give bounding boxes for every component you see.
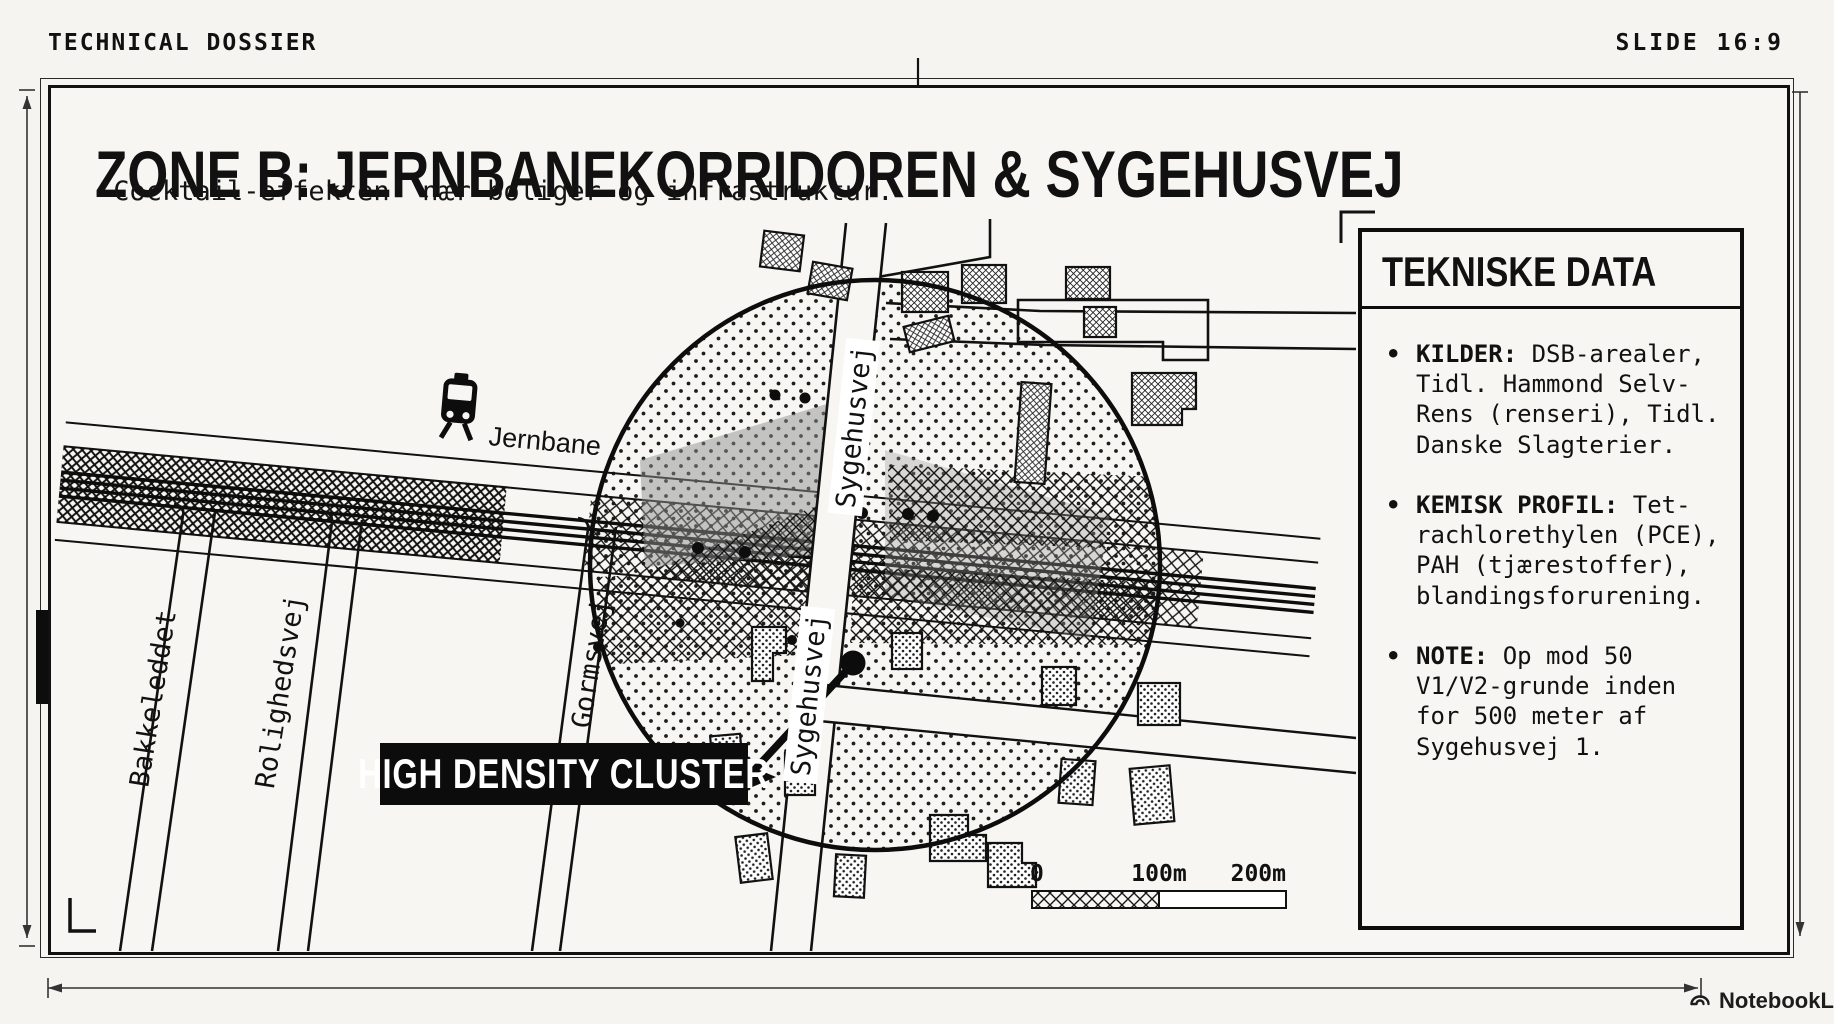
panel-item-kilder: •KILDER: DSB-arealer, Tidl. Hammond Selv… [1376,339,1726,460]
brand-label: NotebookLM [1719,988,1834,1014]
cluster-label: HIGH DENSITY CLUSTER [358,750,770,798]
tekniske-data-panel: TEKNISKE DATA •KILDER: DSB-arealer, Tidl… [1358,228,1744,930]
panel-body: •KILDER: DSB-arealer, Tidl. Hammond Selv… [1362,309,1740,762]
slide-format-label: SLIDE 16:9 [1616,30,1784,56]
panel-item-label: KILDER: [1416,340,1517,368]
scale-start: 0 [1030,861,1044,887]
dossier-label: TECHNICAL DOSSIER [48,30,317,56]
bullet: • [1386,490,1400,520]
panel-item-label: KEMISK PROFIL: [1416,491,1618,519]
train-icon [439,372,479,441]
page-subtitle: 'Cocktail-effekten' nær boliger og infra… [97,176,894,207]
panel-item-label: NOTE: [1416,642,1488,670]
railway-label: Jernbane [487,421,602,461]
panel-title: TEKNISKE DATA [1362,232,1740,309]
panel-item-kemisk-profil: •KEMISK PROFIL: Tet-rachlorethylen (PCE)… [1376,490,1726,611]
notebooklm-brand: NotebookLM [1688,988,1834,1014]
zone-map: Jernbane Bakkeleddet Rolighedsvej Gormsv… [40,215,1360,955]
scale-bar: 0 100m 200m [1030,861,1286,908]
scale-mid: 100m [1131,861,1186,887]
notebooklm-logo-icon [1688,989,1712,1013]
panel-item-note: •NOTE: Op mod 50 V1/V2-grunde inden for … [1376,641,1726,762]
bullet: • [1386,641,1400,671]
street-label-bakkeleddet: Bakkeleddet [124,608,183,789]
scale-end: 200m [1231,861,1286,887]
bullet: • [1386,339,1400,369]
cluster-dot [841,651,866,676]
high-density-cluster-callout: HIGH DENSITY CLUSTER [380,743,748,805]
